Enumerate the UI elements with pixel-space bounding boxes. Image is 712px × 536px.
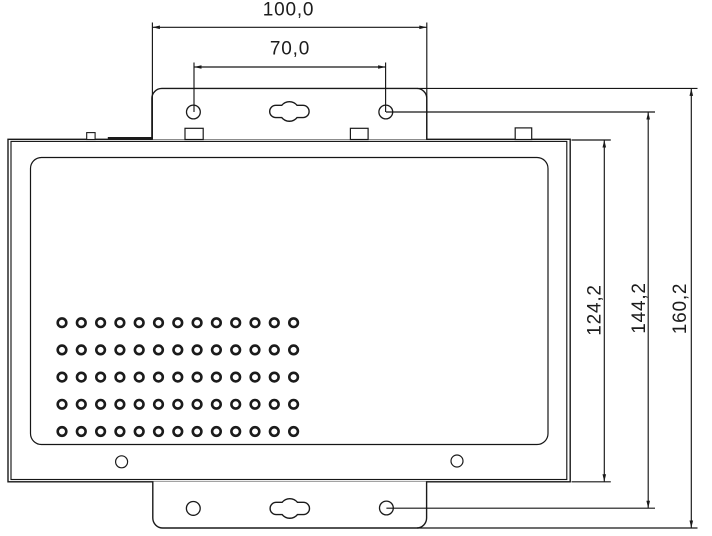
svg-text:100,0: 100,0 (263, 0, 315, 21)
svg-text:70,0: 70,0 (270, 38, 310, 59)
svg-text:144,2: 144,2 (629, 282, 650, 334)
svg-text:160,2: 160,2 (670, 283, 691, 335)
svg-text:124,2: 124,2 (585, 284, 606, 336)
